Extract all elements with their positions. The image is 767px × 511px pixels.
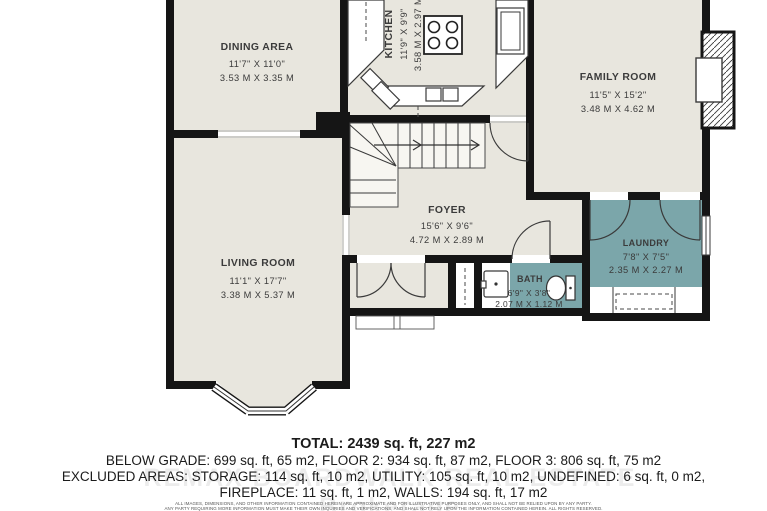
- porch-steps: [356, 316, 434, 329]
- foyer-name: FOYER: [428, 205, 466, 216]
- family-metric: 3.48 M X 4.62 M: [581, 104, 655, 114]
- laundry-metric: 2.35 M X 2.27 M: [609, 265, 683, 275]
- dining-metric: 3.53 M X 3.35 M: [220, 73, 294, 83]
- foyer-imperial: 15'6" X 9'6": [421, 221, 473, 231]
- total-area-text: TOTAL: 2439 sq. ft, 227 m2: [0, 436, 767, 453]
- foyer-metric: 4.72 M X 2.89 M: [410, 235, 484, 245]
- kitchen-imperial: 11'9" X 9'9": [399, 8, 409, 59]
- family-imperial: 11'5" X 15'2": [589, 90, 646, 100]
- bath-name: BATH: [517, 274, 543, 284]
- family-name: FAMILY ROOM: [580, 72, 657, 83]
- fireplace-walls-text: FIREPLACE: 11 sq. ft, 1 m2, WALLS: 194 s…: [0, 485, 767, 501]
- living-imperial: 11'1" X 17'7": [229, 276, 286, 286]
- bath-metric: 2.07 M X 1.12 M: [495, 299, 562, 309]
- washer-dryer-area: [590, 287, 702, 313]
- living-name: LIVING ROOM: [221, 258, 295, 269]
- disclaimer-line-2: ANY PARTY REQUIRING MORE INFORMATION MUS…: [0, 506, 767, 511]
- toilet: [547, 276, 576, 300]
- laundry-window: [702, 216, 710, 255]
- dining-imperial: 11'7" X 11'0": [229, 59, 285, 69]
- bath-imperial: 6'9" X 3'8": [508, 288, 550, 298]
- fireplace: [696, 32, 734, 128]
- area-summary: TOTAL: 2439 sq. ft, 227 m2 BELOW GRADE: …: [0, 436, 767, 511]
- bath-sink: [481, 271, 508, 297]
- living-metric: 3.38 M X 5.37 M: [221, 290, 295, 300]
- floor-plan-page: DINING AREA 11'7" X 11'0" 3.53 M X 3.35 …: [0, 0, 767, 511]
- firebox: [696, 58, 722, 102]
- floor-plan: DINING AREA 11'7" X 11'0" 3.53 M X 3.35 …: [0, 0, 767, 432]
- kitchen-name: KITCHEN: [384, 10, 395, 59]
- excluded-area-text: EXCLUDED AREAS: STORAGE: 114 sq. ft, 10 …: [0, 469, 767, 485]
- dining-name: DINING AREA: [221, 42, 294, 53]
- hall-nook: [526, 200, 582, 255]
- floors-area-text: BELOW GRADE: 699 sq. ft, 65 m2, FLOOR 2:…: [0, 453, 767, 469]
- kitchen-metric: 3.58 M X 2.97 M: [413, 0, 423, 71]
- stove: [424, 16, 462, 54]
- laundry-name: LAUNDRY: [623, 238, 669, 248]
- laundry-imperial: 7'8" X 7'5": [623, 252, 670, 262]
